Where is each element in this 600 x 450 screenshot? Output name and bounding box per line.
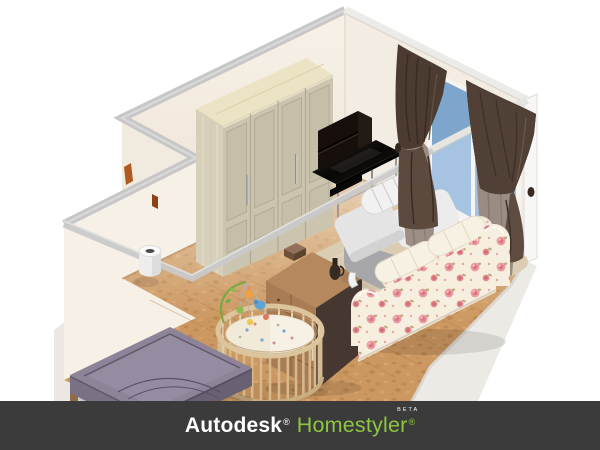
autodesk-wordmark: Autodesk bbox=[185, 415, 282, 436]
homestyler-registered-mark: ® bbox=[409, 418, 416, 427]
brand-bar: Autodesk® Homestyler® BETA bbox=[0, 401, 600, 450]
lamp-slot bbox=[146, 249, 155, 253]
sofa-arm-right bbox=[478, 224, 510, 286]
beta-label: BETA bbox=[397, 408, 419, 414]
room-3d-view[interactable] bbox=[0, 0, 600, 401]
wardrobe-side bbox=[196, 109, 223, 277]
curtain-right-tieback bbox=[528, 187, 535, 197]
homestyler-app: Autodesk® Homestyler® BETA bbox=[0, 0, 600, 450]
sofa-arm-left bbox=[351, 289, 385, 346]
curtain-left-tieback bbox=[395, 143, 401, 153]
homestyler-logo: Autodesk® Homestyler® BETA bbox=[185, 415, 415, 437]
autodesk-registered-mark: ® bbox=[283, 418, 290, 427]
homestyler-wordmark: Homestyler bbox=[297, 415, 408, 437]
